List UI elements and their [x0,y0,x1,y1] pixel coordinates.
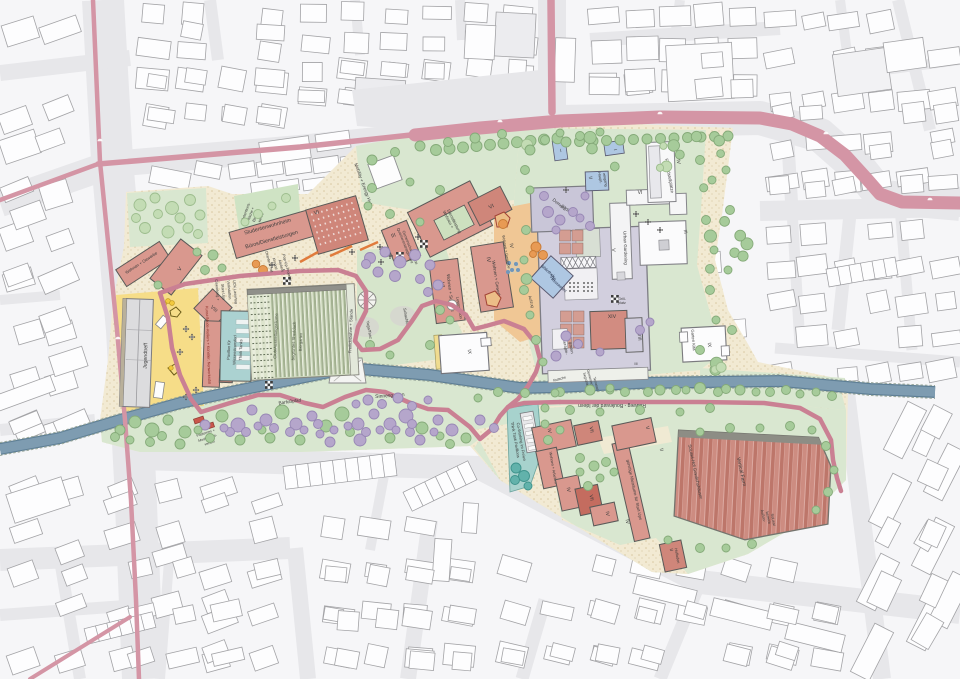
svg-text:Pavillon für: Pavillon für [226,339,232,360]
svg-text:Wissenstransfer/: Wissenstransfer/ [231,334,237,365]
svg-text:III: III [634,361,637,366]
svg-text:Think Tanks: Think Tanks [238,339,244,360]
svg-text:Jugendtreff: Jugendtreff [143,342,150,369]
svg-text:VI: VI [638,190,643,196]
svg-text:VII: VII [587,426,594,433]
svg-text:XIV: XIV [608,314,617,320]
svg-text:Radweg - Boulevard der Ideen: Radweg - Boulevard der Ideen [578,402,646,408]
svg-text:VII: VII [587,494,594,501]
svg-text:Biergarten: Biergarten [298,333,304,352]
svg-text:platz: platz [618,301,626,305]
